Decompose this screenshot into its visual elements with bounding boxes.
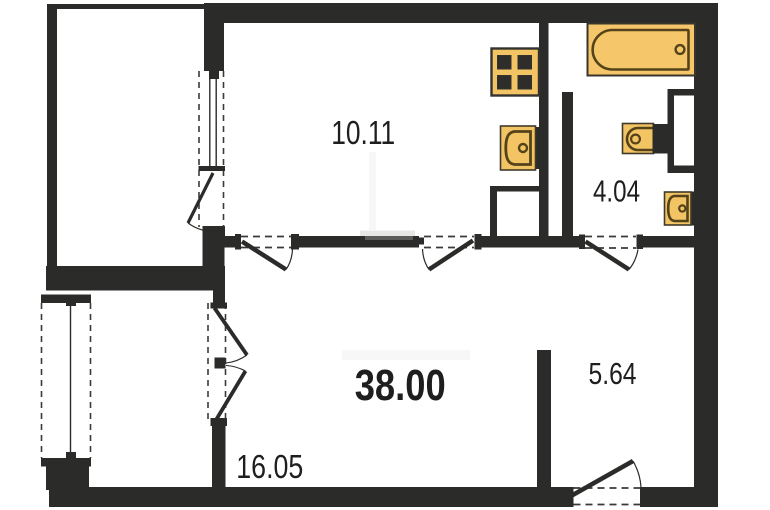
svg-text:10.11: 10.11: [331, 114, 395, 151]
svg-text:5.64: 5.64: [589, 356, 637, 391]
svg-text:16.05: 16.05: [236, 448, 303, 485]
svg-text:38.00: 38.00: [355, 361, 446, 410]
svg-text:4.04: 4.04: [593, 174, 640, 209]
